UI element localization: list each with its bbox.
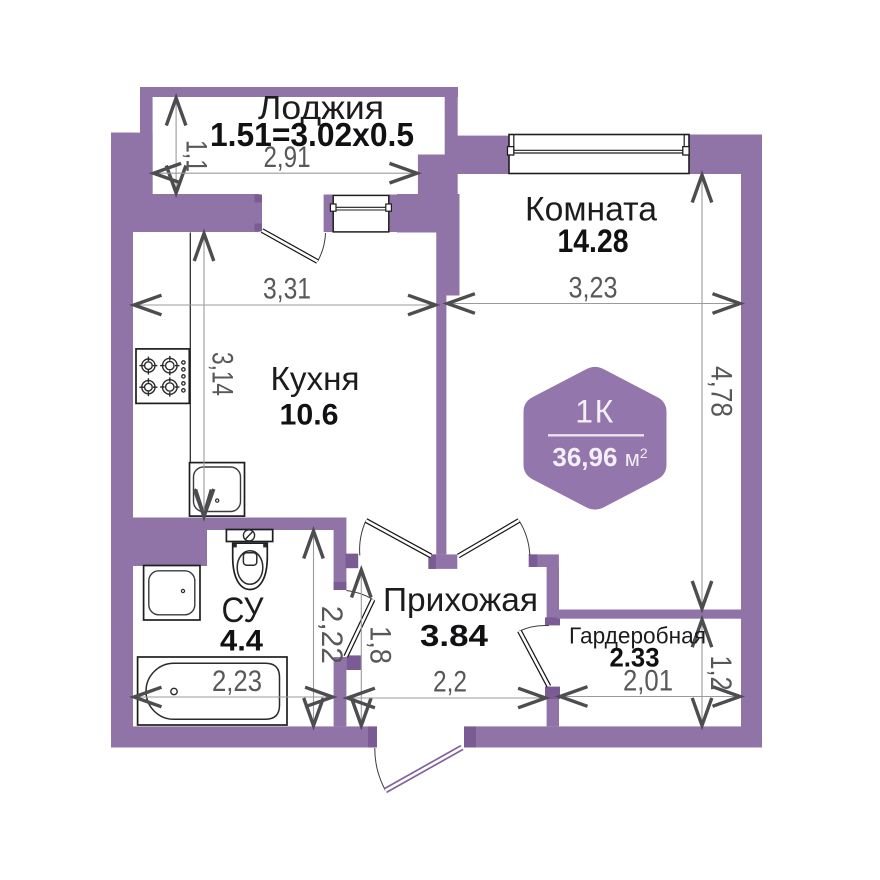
svg-text:2,22: 2,22 (315, 606, 348, 664)
svg-text:1,2: 1,2 (704, 656, 737, 691)
svg-text:1,1: 1,1 (180, 140, 213, 172)
svg-text:3,23: 3,23 (569, 272, 618, 305)
svg-text:1К: 1К (575, 394, 614, 430)
svg-text:1,8: 1,8 (364, 626, 397, 664)
svg-text:Прихожая: Прихожая (383, 581, 538, 618)
svg-text:36,96 м2: 36,96 м2 (552, 442, 647, 472)
svg-text:10.6: 10.6 (280, 399, 339, 432)
svg-text:2,23: 2,23 (212, 665, 262, 698)
svg-text:3,14: 3,14 (206, 352, 239, 396)
svg-text:1.51=3.02х0.5: 1.51=3.02х0.5 (210, 116, 414, 153)
svg-text:3,31: 3,31 (263, 273, 311, 306)
svg-text:4.4: 4.4 (220, 625, 263, 658)
svg-text:2,2: 2,2 (433, 666, 467, 699)
svg-text:2.33: 2.33 (610, 643, 660, 673)
svg-text:4,78: 4,78 (705, 366, 738, 417)
svg-text:3.84: 3.84 (420, 618, 489, 653)
svg-text:14.28: 14.28 (558, 223, 629, 259)
svg-text:Кухня: Кухня (271, 360, 360, 397)
